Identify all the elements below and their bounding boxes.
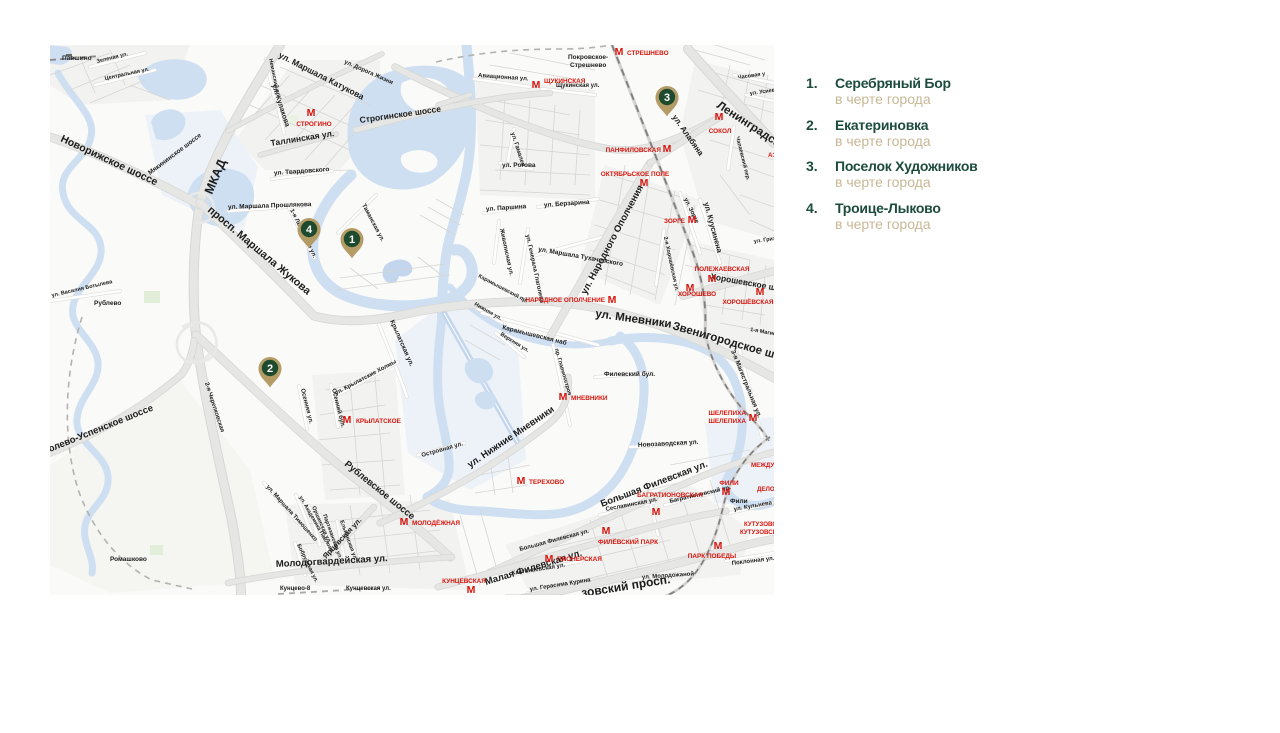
svg-text:М: М <box>343 414 352 426</box>
svg-text:КУТУЗОВСК: КУТУЗОВСК <box>740 529 774 536</box>
svg-text:МОЛОДЁЖНАЯ: МОЛОДЁЖНАЯ <box>412 519 460 527</box>
svg-text:Ромашково: Ромашково <box>110 556 147 563</box>
svg-text:2: 2 <box>267 363 273 375</box>
svg-text:М: М <box>688 214 697 226</box>
svg-text:ШЕЛЕПИХА: ШЕЛЕПИХА <box>709 410 747 417</box>
svg-text:Павшино: Павшино <box>62 55 92 62</box>
svg-text:М: М <box>749 412 758 424</box>
svg-text:СТРЕШНЕВО: СТРЕШНЕВО <box>627 50 669 57</box>
svg-text:Фили: Фили <box>730 498 748 505</box>
svg-text:МНЕВНИКИ: МНЕВНИКИ <box>571 395 608 402</box>
svg-text:М: М <box>602 525 611 537</box>
svg-text:КУНЦЕВСКАЯ: КУНЦЕВСКАЯ <box>442 578 486 585</box>
svg-text:МЕЖДУ: МЕЖДУ <box>751 462 774 469</box>
svg-text:3: 3 <box>664 92 670 104</box>
svg-text:ФИЛИ: ФИЛИ <box>719 480 739 487</box>
svg-text:М: М <box>608 294 617 306</box>
svg-text:М: М <box>615 46 624 58</box>
svg-text:М: М <box>545 553 554 565</box>
svg-text:Кунцево-8: Кунцево-8 <box>280 586 311 592</box>
svg-text:Рублево: Рублево <box>94 299 121 307</box>
svg-text:ФИЛЁВСКИЙ ПАРК: ФИЛЁВСКИЙ ПАРК <box>598 537 658 546</box>
svg-text:АЭ: АЭ <box>768 152 774 159</box>
svg-text:М: М <box>517 475 526 487</box>
svg-text:НАРОДНОЕ ОПОЛЧЕНИЕ: НАРОДНОЕ ОПОЛЧЕНИЕ <box>525 297 605 304</box>
svg-text:ЗОРГЕ: ЗОРГЕ <box>664 218 686 225</box>
svg-text:Кунцевская ул.: Кунцевская ул. <box>346 586 391 592</box>
svg-text:М: М <box>715 111 724 123</box>
svg-text:ХОРОШЁВСКАЯ: ХОРОШЁВСКАЯ <box>722 298 773 306</box>
svg-text:М: М <box>714 540 723 552</box>
svg-text:ОКТЯБРЬСКОЕ ПОЛЕ: ОКТЯБРЬСКОЕ ПОЛЕ <box>601 171 670 178</box>
svg-text:СТРОГИНО: СТРОГИНО <box>296 121 331 128</box>
svg-text:ПОЛЕЖАЕВСКАЯ: ПОЛЕЖАЕВСКАЯ <box>695 266 750 273</box>
svg-text:М: М <box>722 486 731 498</box>
svg-text:М: М <box>307 107 316 119</box>
svg-text:ПАНФИЛОВСКАЯ: ПАНФИЛОВСКАЯ <box>606 147 662 154</box>
svg-text:ХОРОШЕВО: ХОРОШЕВО <box>678 291 716 298</box>
svg-text:ПИОНЕРСКАЯ: ПИОНЕРСКАЯ <box>557 556 602 563</box>
svg-text:М: М <box>708 273 717 285</box>
svg-text:ПАРК ПОБЕДЫ: ПАРК ПОБЕДЫ <box>688 553 736 560</box>
svg-text:Покровское-: Покровское- <box>568 54 608 61</box>
svg-text:М: М <box>652 506 661 518</box>
svg-text:М: М <box>756 286 765 298</box>
svg-text:М: М <box>640 177 649 189</box>
svg-text:ДЕЛО: ДЕЛО <box>757 486 774 493</box>
svg-text:М: М <box>467 584 476 595</box>
svg-text:БАГРАТИОНОВСКАЯ: БАГРАТИОНОВСКАЯ <box>637 492 703 499</box>
svg-text:ЩУКИНСКАЯ: ЩУКИНСКАЯ <box>544 78 586 85</box>
svg-text:Стрешнево: Стрешнево <box>570 62 606 69</box>
svg-text:СОКОЛ: СОКОЛ <box>709 128 732 135</box>
svg-text:4: 4 <box>306 224 313 236</box>
svg-text:М: М <box>400 516 409 528</box>
svg-text:ШЕЛЕПИХА: ШЕЛЕПИХА <box>709 418 747 425</box>
svg-text:КРЫЛАТСКОЕ: КРЫЛАТСКОЕ <box>356 418 402 425</box>
svg-text:ТЕРЕХОВО: ТЕРЕХОВО <box>529 479 564 486</box>
svg-text:КУТУЗОВС: КУТУЗОВС <box>744 521 774 528</box>
svg-text:М: М <box>559 391 568 403</box>
svg-text:Филевский бул.: Филевский бул. <box>604 370 655 378</box>
svg-text:1: 1 <box>349 234 355 246</box>
svg-text:М: М <box>663 143 672 155</box>
svg-text:М: М <box>532 79 541 91</box>
